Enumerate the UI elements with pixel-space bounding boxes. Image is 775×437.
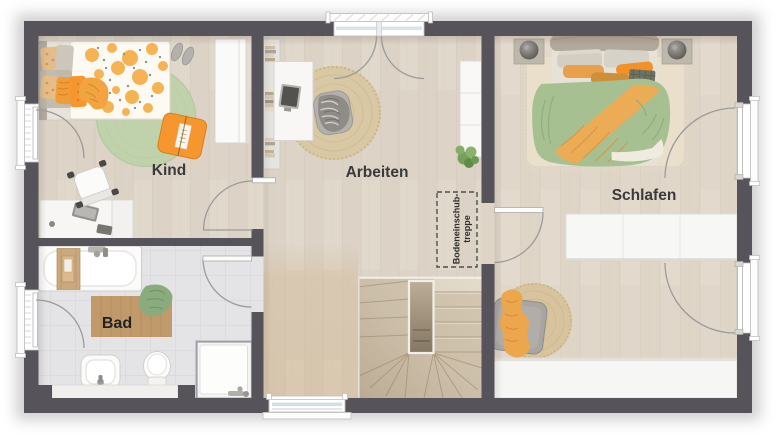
svg-text:Kind: Kind bbox=[152, 162, 186, 179]
svg-text:Schlafen: Schlafen bbox=[612, 187, 677, 204]
svg-text:Arbeiten: Arbeiten bbox=[346, 164, 409, 181]
svg-text:Bad: Bad bbox=[102, 315, 132, 332]
